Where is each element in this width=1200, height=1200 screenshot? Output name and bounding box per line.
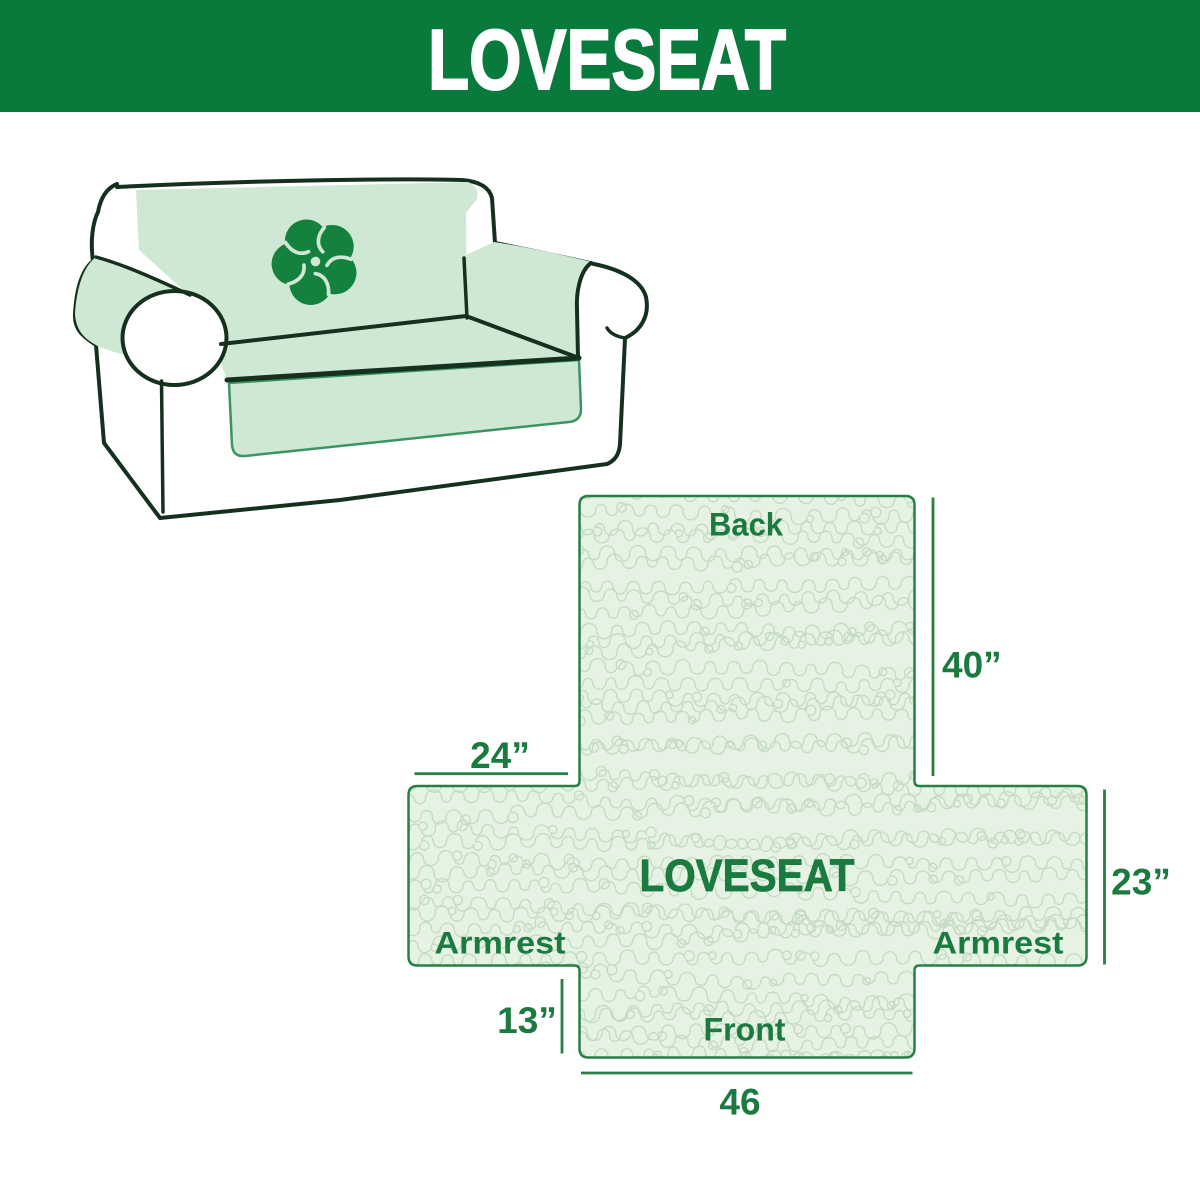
svg-text:13”: 13” bbox=[497, 1000, 557, 1041]
svg-text:Armrest: Armrest bbox=[435, 925, 567, 961]
svg-text:23”: 23” bbox=[1111, 862, 1171, 903]
svg-text:24”: 24” bbox=[470, 735, 530, 776]
svg-text:LOVESEAT: LOVESEAT bbox=[640, 850, 855, 901]
svg-text:40”: 40” bbox=[942, 645, 1002, 686]
svg-text:Back: Back bbox=[709, 507, 784, 543]
svg-text:46: 46 bbox=[719, 1082, 760, 1123]
svg-text:Front: Front bbox=[704, 1012, 786, 1048]
svg-text:LOVESEAT: LOVESEAT bbox=[428, 13, 786, 108]
svg-text:Armrest: Armrest bbox=[933, 925, 1065, 961]
